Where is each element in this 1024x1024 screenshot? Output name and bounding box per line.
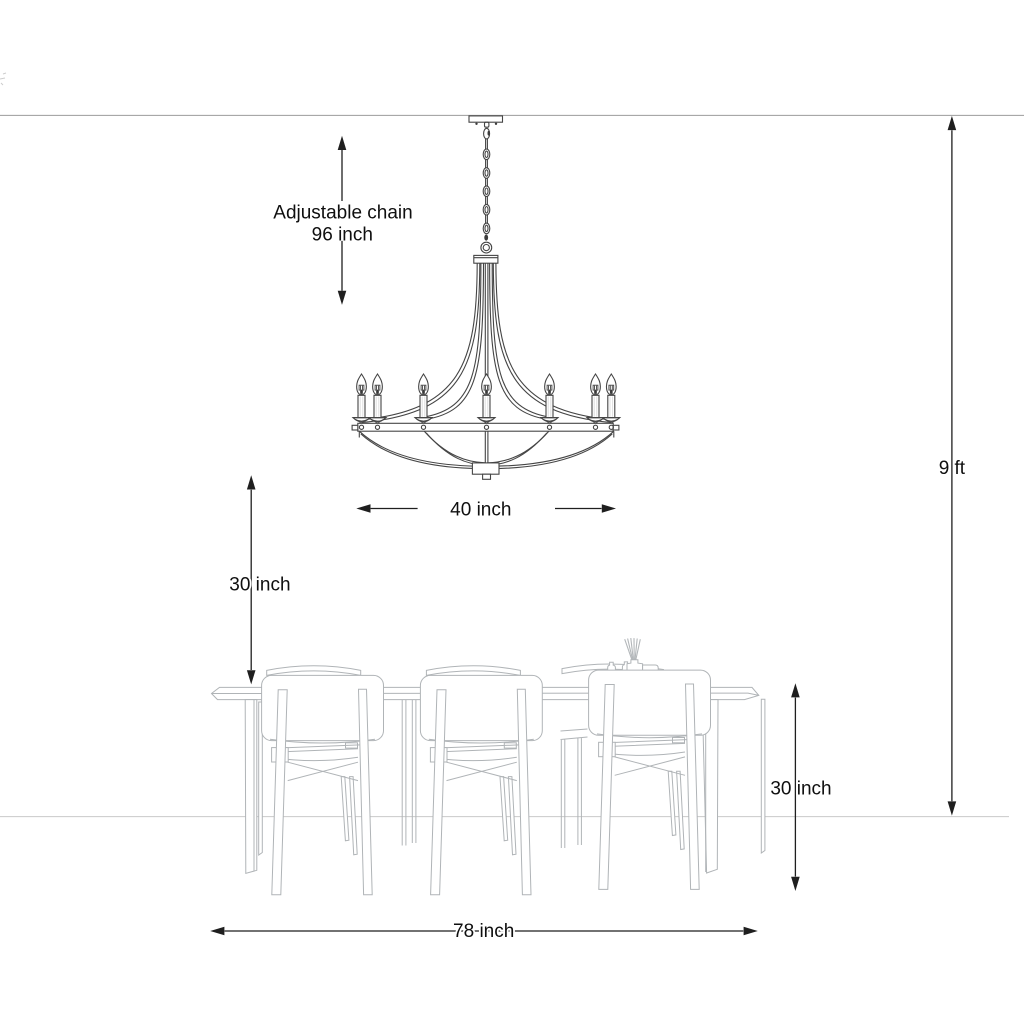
svg-text:Adjustable chain: Adjustable chain bbox=[273, 203, 412, 224]
svg-text:30 inch: 30 inch bbox=[770, 779, 831, 800]
svg-text:9 ft: 9 ft bbox=[939, 458, 966, 479]
svg-text:96 inch: 96 inch bbox=[312, 224, 373, 245]
svg-text:40 inch: 40 inch bbox=[450, 499, 511, 520]
svg-text:30 inch: 30 inch bbox=[229, 575, 290, 596]
svg-text:78 inch: 78 inch bbox=[453, 921, 514, 942]
